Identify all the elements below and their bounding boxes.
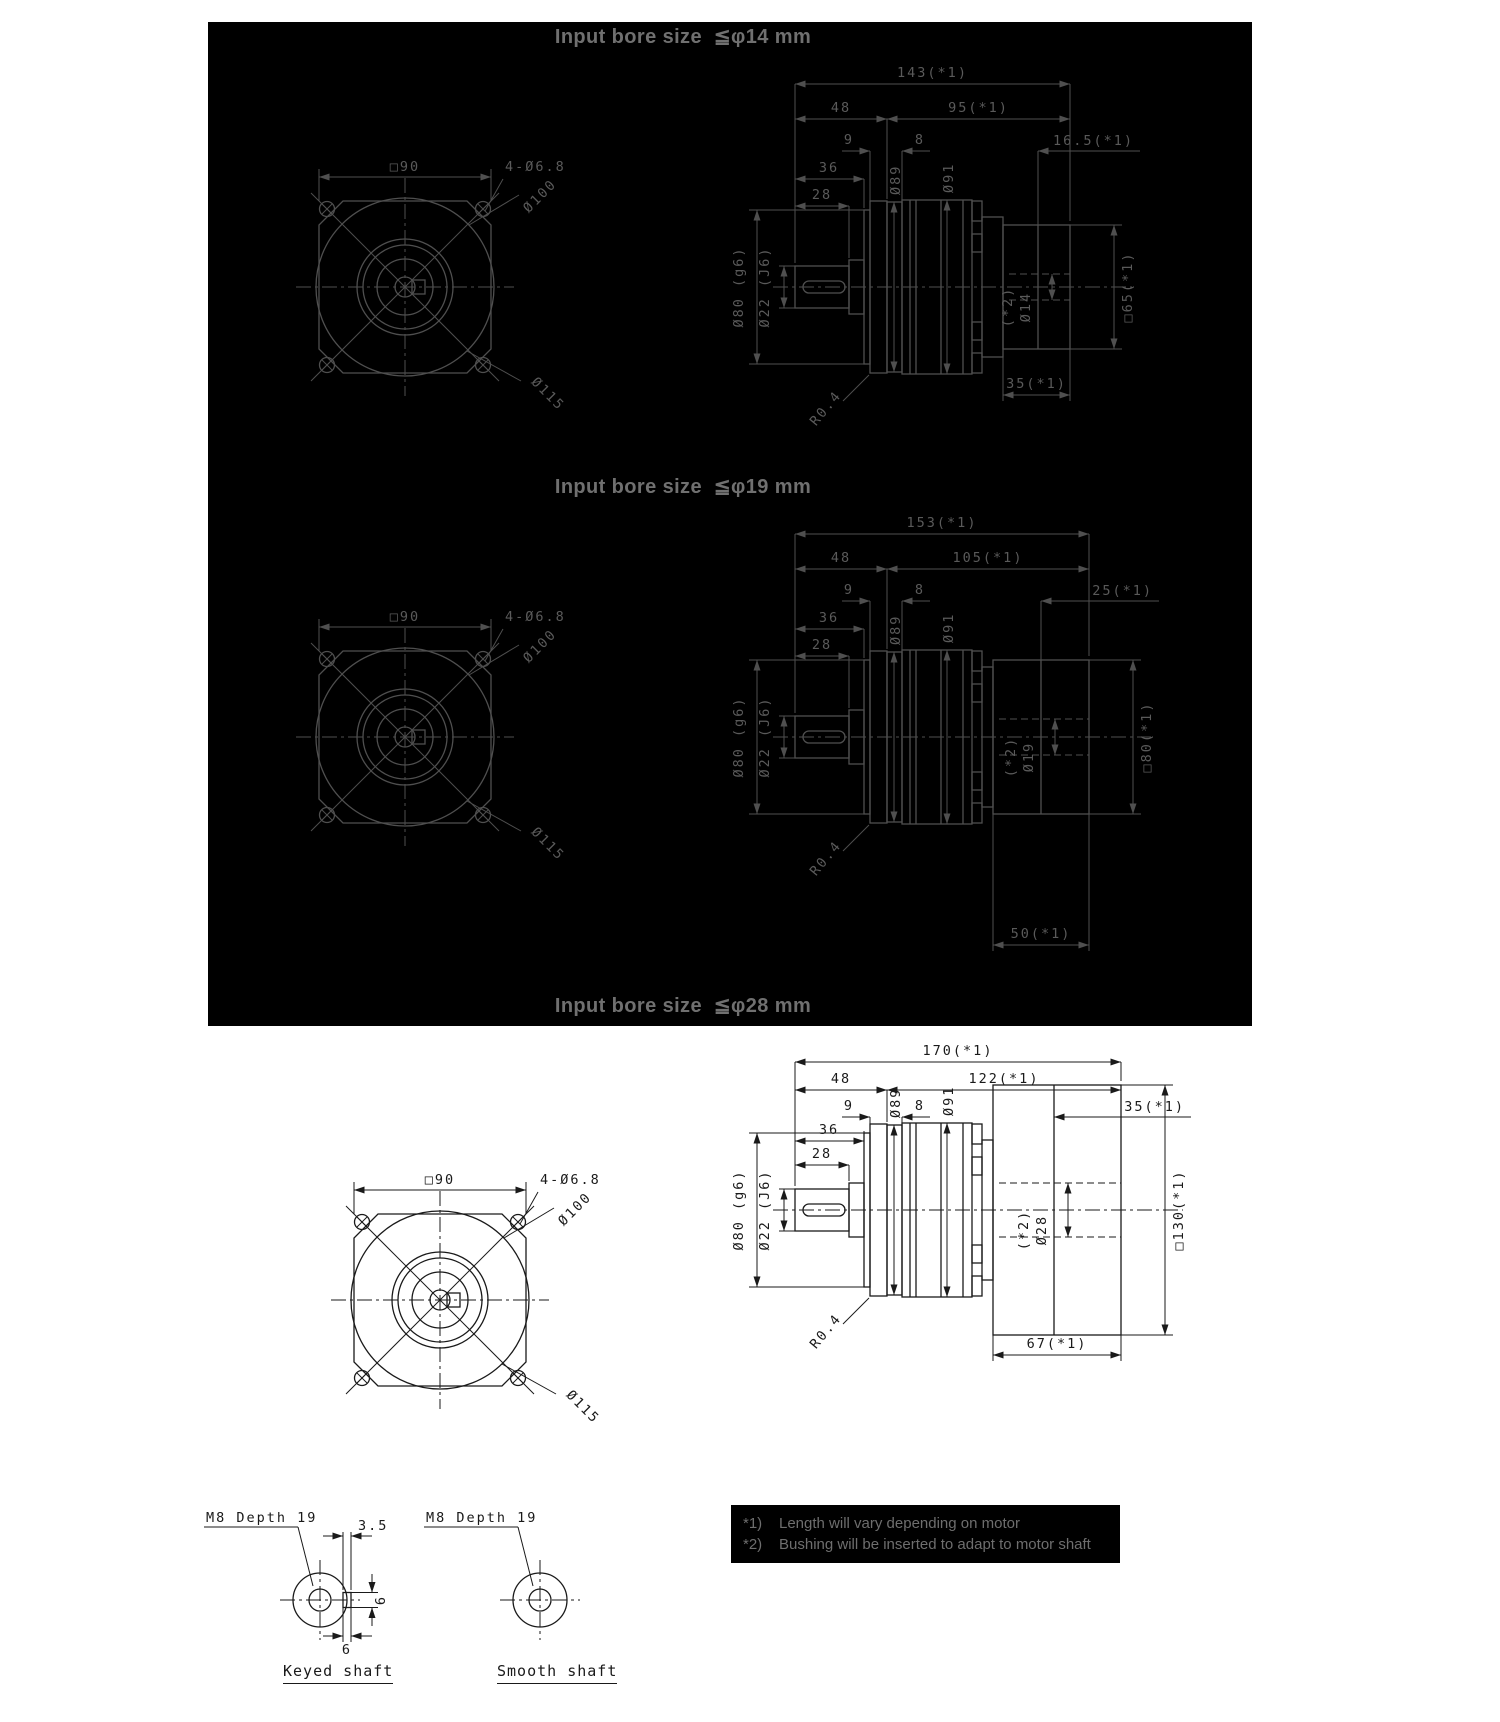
front-square-dim: □90 [390, 609, 420, 625]
output-length-dim: 35(*1) [1006, 376, 1067, 392]
shaft-length-dim: 28 [812, 637, 832, 653]
total-length-dim: 143(*1) [897, 65, 968, 81]
smooth-thread-label: M8 Depth 19 [426, 1510, 537, 1526]
front-view: □904-Ø6.8Ø100Ø115 [296, 609, 568, 864]
boss-length-dim: 36 [819, 1122, 839, 1138]
footnotes-box: *1)Length will vary depending on motor *… [731, 1505, 1120, 1563]
drawing-section-2: □904-Ø6.8Ø100Ø115(*2)Ø28□130(*1)35(*1)67… [208, 1000, 1298, 1450]
keyed-thread-label: M8 Depth 19 [206, 1510, 317, 1526]
key-top-dim: 3.5 [358, 1518, 388, 1534]
bore-dia-label: Ø19 [1021, 742, 1037, 772]
bore-footnote-label: (*2) [1000, 287, 1016, 328]
front-square-dim: □90 [390, 159, 420, 175]
tail-length-dim: 35(*1) [1124, 1099, 1185, 1115]
smooth-shaft-label: Smooth shaft [497, 1662, 617, 1684]
dia80-label: Ø80 (g6) [731, 1169, 747, 1250]
dia89-label: Ø89 [888, 1088, 904, 1118]
motor-side-length-dim: 95(*1) [948, 100, 1009, 116]
dia89-label: Ø89 [888, 615, 904, 645]
fillet-radius-label: R0.4 [807, 838, 845, 879]
ring-width-dim: 8 [915, 132, 925, 148]
dia22-label: Ø22 (J6) [757, 696, 773, 777]
shaft-length-dim: 28 [812, 1146, 832, 1162]
pilot-dia-dim: Ø100 [520, 626, 560, 666]
dia80-label: Ø80 (g6) [731, 246, 747, 327]
pilot-dia-dim: Ø100 [520, 176, 560, 216]
motor-square-dim: □65(*1) [1120, 252, 1136, 323]
front-view: □904-Ø6.8Ø100Ø115 [331, 1172, 603, 1427]
motor-side-length-dim: 122(*1) [969, 1071, 1040, 1087]
dia22-label: Ø22 (J6) [757, 1169, 773, 1250]
output-length-dim: 67(*1) [1027, 1336, 1088, 1352]
bolt-holes-dim: 4-Ø6.8 [540, 1172, 601, 1188]
front-square-dim: □90 [425, 1172, 455, 1188]
tail-length-dim: 25(*1) [1092, 583, 1153, 599]
front-length-dim: 48 [831, 100, 851, 116]
bore-dia-label: Ø14 [1018, 292, 1034, 322]
tail-length-dim: 16.5(*1) [1053, 133, 1134, 149]
motor-square-dim: □80(*1) [1139, 702, 1155, 773]
footnote-1: *1)Length will vary depending on motor [743, 1513, 1108, 1534]
dia80-label: Ø80 (g6) [731, 696, 747, 777]
fillet-radius-label: R0.4 [807, 1311, 845, 1352]
flange-width-dim: 9 [844, 132, 854, 148]
total-length-dim: 170(*1) [923, 1043, 994, 1059]
dia89-label: Ø89 [888, 165, 904, 195]
footnote-1-text: Length will vary depending on motor [779, 1515, 1020, 1532]
front-view: □904-Ø6.8Ø100Ø115 [296, 159, 568, 414]
bolt-holes-dim: 4-Ø6.8 [505, 609, 566, 625]
footnote-2-text: Bushing will be inserted to adapt to mot… [779, 1536, 1091, 1553]
flange-width-dim: 9 [844, 1098, 854, 1114]
total-length-dim: 153(*1) [907, 515, 978, 531]
boss-length-dim: 36 [819, 160, 839, 176]
key-side-dim: 6 [373, 1595, 389, 1605]
bolt-circle-dia-dim: Ø115 [528, 374, 568, 414]
key-bottom-dim: 6 [342, 1642, 352, 1658]
ring-width-dim: 8 [915, 582, 925, 598]
footnote-2: *2)Bushing will be inserted to adapt to … [743, 1534, 1108, 1555]
shaft-length-dim: 28 [812, 187, 832, 203]
dia91-label: Ø91 [941, 1086, 957, 1116]
bore-dia-label: Ø28 [1034, 1215, 1050, 1245]
side-view: (*2)Ø28□130(*1)35(*1)67(*1)170(*1)48122(… [731, 1043, 1191, 1361]
side-view: (*2)Ø19□80(*1)25(*1)50(*1)153(*1)48105(*… [731, 515, 1159, 951]
footnote-2-ref: *2) [743, 1534, 769, 1555]
keyed-shaft-label: Keyed shaft [283, 1662, 393, 1684]
bore-footnote-label: (*2) [1016, 1210, 1032, 1251]
drawing-section-0: □904-Ø6.8Ø100Ø115(*2)Ø14□65(*1)16.5(*1)3… [208, 40, 1298, 485]
ring-width-dim: 8 [915, 1098, 925, 1114]
boss-length-dim: 36 [819, 610, 839, 626]
drawing-page: Input bore size ≦φ14 mm Input bore size … [0, 0, 1500, 1722]
footnote-1-ref: *1) [743, 1513, 769, 1534]
bolt-circle-dia-dim: Ø115 [563, 1387, 603, 1427]
bore-footnote-label: (*2) [1003, 737, 1019, 778]
dia22-label: Ø22 (J6) [757, 246, 773, 327]
keyed-shaft-detail: M8 Depth 193.566 [204, 1510, 389, 1658]
output-length-dim: 50(*1) [1011, 926, 1072, 942]
motor-square-dim: □130(*1) [1171, 1169, 1187, 1250]
front-length-dim: 48 [831, 1071, 851, 1087]
drawing-section-1: □904-Ø6.8Ø100Ø115(*2)Ø19□80(*1)25(*1)50(… [208, 490, 1298, 965]
bolt-holes-dim: 4-Ø6.8 [505, 159, 566, 175]
fillet-radius-label: R0.4 [807, 388, 845, 429]
dia91-label: Ø91 [941, 613, 957, 643]
motor-side-length-dim: 105(*1) [953, 550, 1024, 566]
side-view: (*2)Ø14□65(*1)16.5(*1)35(*1)143(*1)4895(… [731, 65, 1140, 429]
dia91-label: Ø91 [941, 163, 957, 193]
front-length-dim: 48 [831, 550, 851, 566]
bolt-circle-dia-dim: Ø115 [528, 824, 568, 864]
flange-width-dim: 9 [844, 582, 854, 598]
smooth-shaft-detail: M8 Depth 19 [424, 1510, 580, 1640]
pilot-dia-dim: Ø100 [555, 1189, 595, 1229]
